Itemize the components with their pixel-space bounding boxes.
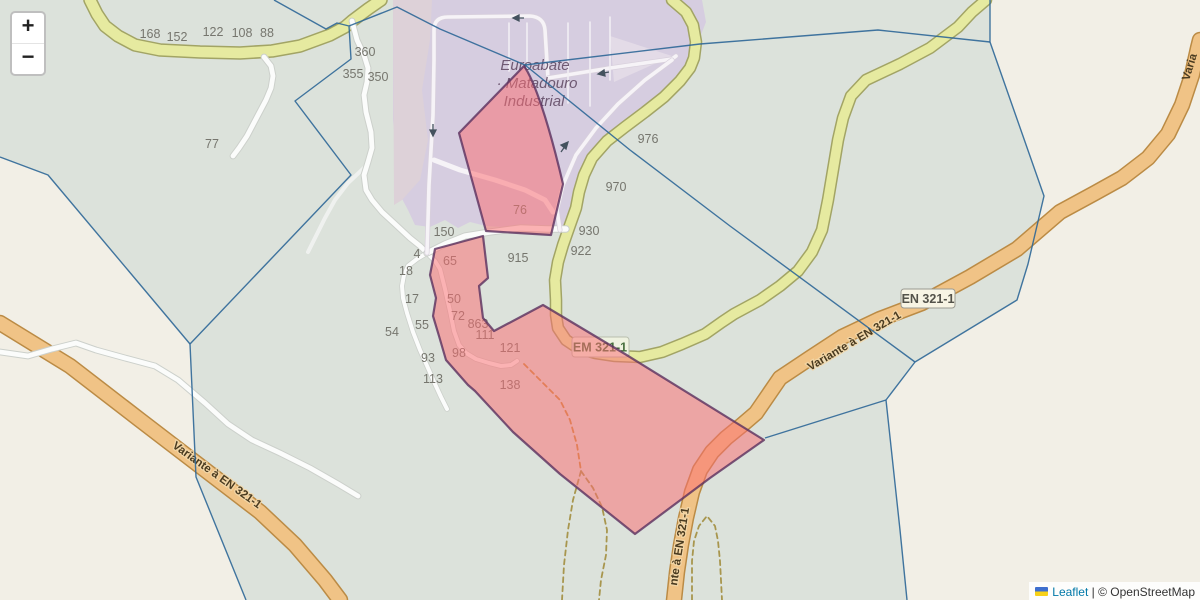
svg-text:915: 915 xyxy=(508,251,529,265)
svg-text:122: 122 xyxy=(203,25,224,39)
svg-text:108: 108 xyxy=(232,26,253,40)
svg-text:350: 350 xyxy=(368,70,389,84)
svg-text:17: 17 xyxy=(405,292,419,306)
svg-text:55: 55 xyxy=(415,318,429,332)
svg-text:360: 360 xyxy=(355,45,376,59)
svg-text:113: 113 xyxy=(423,372,443,386)
svg-text:88: 88 xyxy=(260,26,274,40)
svg-text:18: 18 xyxy=(399,264,413,278)
svg-text:4: 4 xyxy=(414,247,421,261)
svg-text:355: 355 xyxy=(343,67,364,81)
svg-text:970: 970 xyxy=(606,180,627,194)
svg-text:168: 168 xyxy=(140,27,161,41)
svg-text:77: 77 xyxy=(205,137,219,151)
svg-text:54: 54 xyxy=(385,325,399,339)
svg-text:EN 321-1: EN 321-1 xyxy=(902,292,955,306)
svg-text:150: 150 xyxy=(434,225,455,239)
svg-text:922: 922 xyxy=(571,244,592,258)
svg-text:930: 930 xyxy=(579,224,600,238)
svg-text:976: 976 xyxy=(638,132,659,146)
svg-text:152: 152 xyxy=(167,30,188,44)
svg-text:93: 93 xyxy=(421,351,435,365)
